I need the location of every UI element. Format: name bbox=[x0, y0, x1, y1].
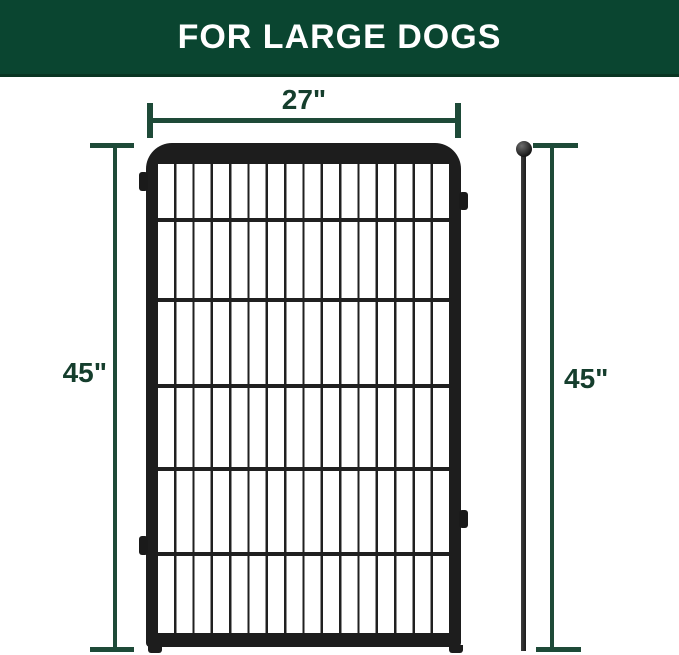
left-height-dimension-line bbox=[113, 145, 117, 650]
ground-stake-pole bbox=[521, 155, 526, 651]
left-height-dimension-cap-bottom bbox=[90, 647, 134, 652]
connector-tab-left-bottom bbox=[139, 536, 148, 555]
width-dimension-label: 27" bbox=[150, 84, 458, 116]
left-height-dimension-label: 45" bbox=[38, 357, 107, 389]
left-height-dimension-cap-top bbox=[90, 143, 134, 148]
right-height-dimension-cap-bottom bbox=[536, 647, 581, 652]
right-height-dimension-label: 45" bbox=[564, 363, 624, 395]
fence-panel bbox=[146, 143, 461, 647]
product-dimension-image: FOR LARGE DOGS 27" 45" 45" bbox=[0, 0, 679, 655]
connector-tab-right-bottom bbox=[459, 510, 468, 528]
connector-tab-left-top bbox=[139, 172, 148, 191]
fence-foot-left bbox=[148, 645, 162, 653]
right-height-dimension-line bbox=[550, 145, 554, 650]
header-banner: FOR LARGE DOGS bbox=[0, 0, 679, 77]
connector-tab-right-top bbox=[459, 192, 468, 210]
width-dimension-line bbox=[150, 118, 458, 123]
ground-stake-ball-top bbox=[516, 141, 532, 157]
header-title: FOR LARGE DOGS bbox=[178, 18, 502, 57]
fence-foot-right bbox=[449, 645, 463, 653]
fence-wire-grid bbox=[158, 164, 449, 633]
right-height-dimension-cap-top bbox=[533, 143, 578, 148]
